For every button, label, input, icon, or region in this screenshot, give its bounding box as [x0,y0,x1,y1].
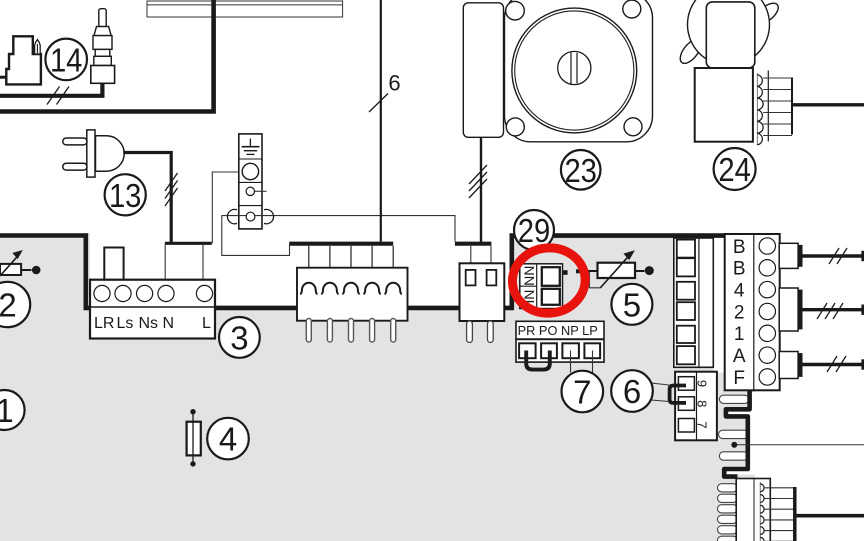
svg-text:29: 29 [518,212,551,249]
svg-text:PR PO NP LP: PR PO NP LP [518,323,598,338]
svg-text:4: 4 [219,421,237,458]
svg-text:13: 13 [109,177,142,214]
svg-text:14: 14 [50,41,83,78]
svg-text:1: 1 [734,324,745,345]
svg-text:8: 8 [695,400,710,407]
svg-text:NN: NN [521,266,537,286]
svg-text:LR: LR [94,315,114,332]
svg-text:1: 1 [0,392,14,429]
svg-text:9: 9 [695,380,710,387]
svg-text:23: 23 [564,152,597,189]
svg-text:5: 5 [623,286,641,323]
svg-text:4: 4 [734,280,745,301]
svg-text:2: 2 [734,302,745,323]
svg-text:B: B [733,259,746,280]
svg-text:6: 6 [623,373,641,410]
svg-text:Ns: Ns [139,315,159,332]
svg-text:F: F [733,368,745,389]
svg-text:Ls: Ls [117,315,134,332]
svg-text:7: 7 [573,374,591,411]
svg-text:B: B [733,237,746,258]
svg-text:A: A [733,346,746,367]
svg-text:N: N [163,315,175,332]
svg-text:7: 7 [695,421,710,428]
svg-text:24: 24 [718,151,751,188]
svg-text:2: 2 [0,287,17,324]
svg-text:3: 3 [230,319,248,356]
svg-text:6: 6 [388,71,400,96]
svg-text:L: L [202,315,211,332]
